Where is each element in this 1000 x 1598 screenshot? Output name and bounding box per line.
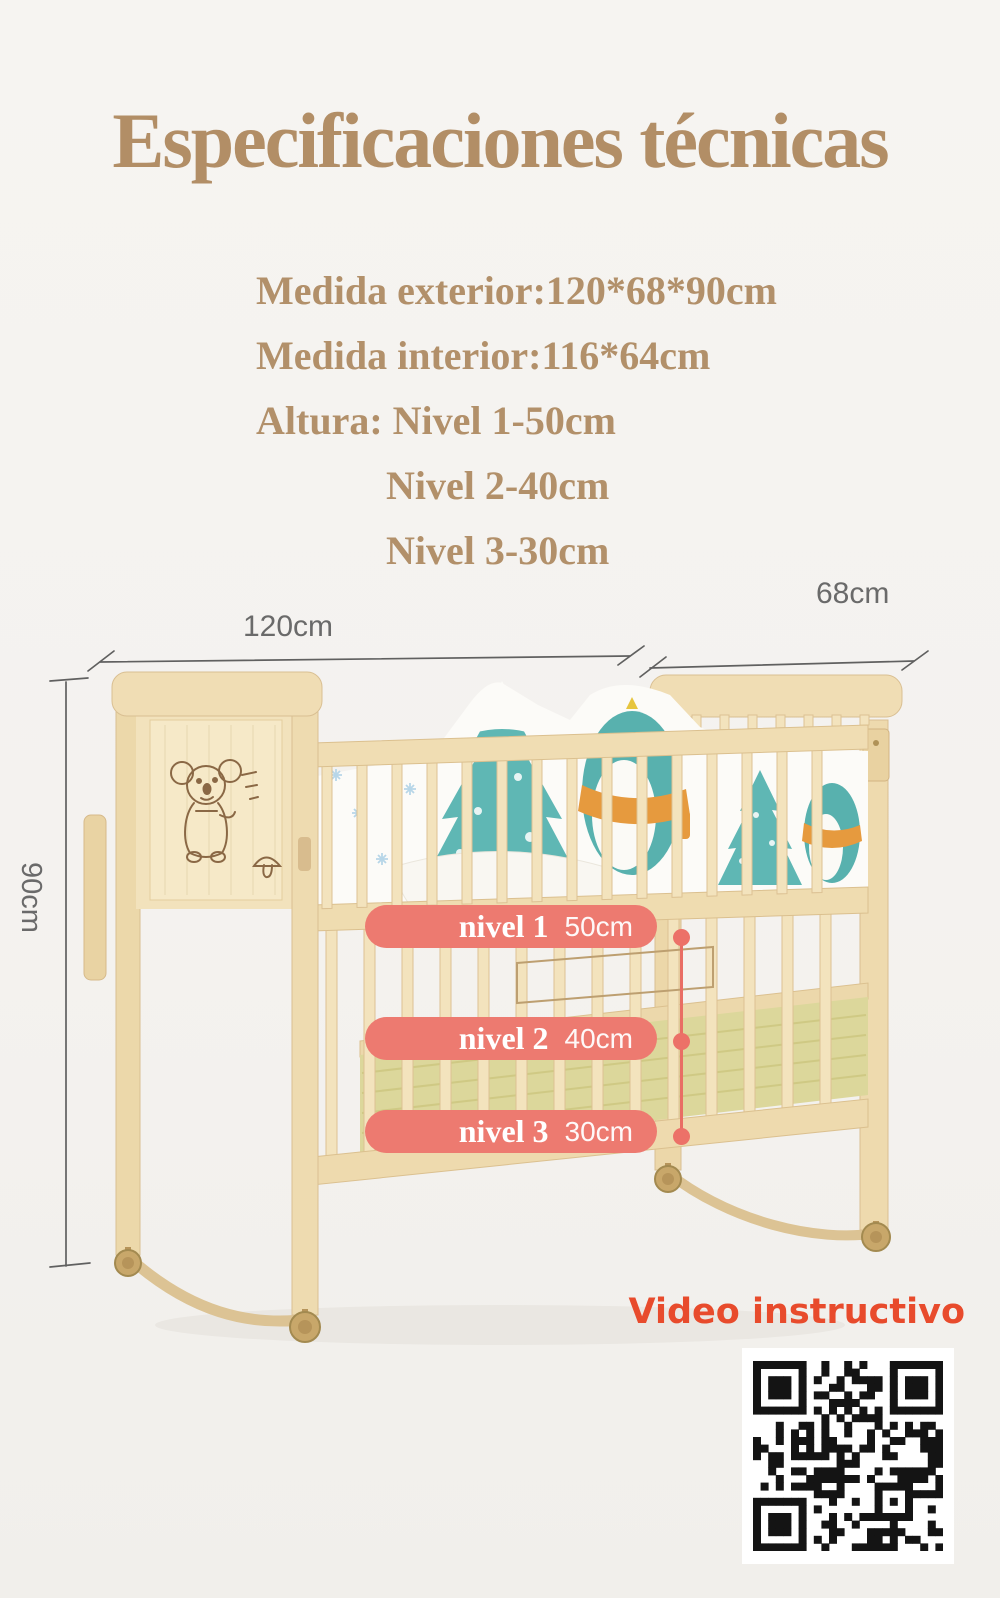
spec-line-exterior: Medida exterior:120*68*90cm — [256, 258, 777, 323]
level-pill-2: nivel 2 40cm — [365, 1017, 657, 1060]
level-value: 30cm — [565, 1116, 633, 1148]
level-dot — [673, 1033, 690, 1050]
depth-dimension-label: 68cm — [816, 577, 889, 611]
spec-line-interior: Medida interior:116*64cm — [256, 323, 777, 388]
level-dot — [673, 929, 690, 946]
left-headboard — [84, 672, 322, 1342]
crib-illustration — [70, 665, 920, 1355]
width-dimension-label: 120cm — [243, 610, 333, 644]
level-value: 40cm — [565, 1023, 633, 1055]
spec-sheet: Especificaciones técnicas Medida exterio… — [0, 0, 1000, 1598]
level-value: 50cm — [565, 911, 633, 943]
spec-list: Medida exterior:120*68*90cm Medida inter… — [256, 258, 777, 583]
qr-code — [742, 1348, 954, 1564]
video-instructivo-label: Video instructivo — [620, 1292, 965, 1332]
page-title: Especificaciones técnicas — [0, 100, 1000, 182]
level-name: nivel 3 — [459, 1113, 549, 1150]
spec-line-nivel3: Nivel 3-30cm — [256, 518, 777, 583]
level-pill-1: nivel 1 50cm — [365, 905, 657, 948]
upper-slats — [322, 748, 822, 908]
level-dot — [673, 1128, 690, 1145]
qr-code-pattern — [753, 1361, 943, 1551]
level-name: nivel 2 — [459, 1020, 549, 1057]
drawer-outline — [517, 947, 713, 1003]
level-pill-3: nivel 3 30cm — [365, 1110, 657, 1153]
height-dimension-label: 90cm — [14, 862, 47, 933]
spec-line-nivel2: Nivel 2-40cm — [256, 453, 777, 518]
spec-line-altura: Altura: Nivel 1-50cm — [256, 388, 777, 453]
level-name: nivel 1 — [459, 908, 549, 945]
